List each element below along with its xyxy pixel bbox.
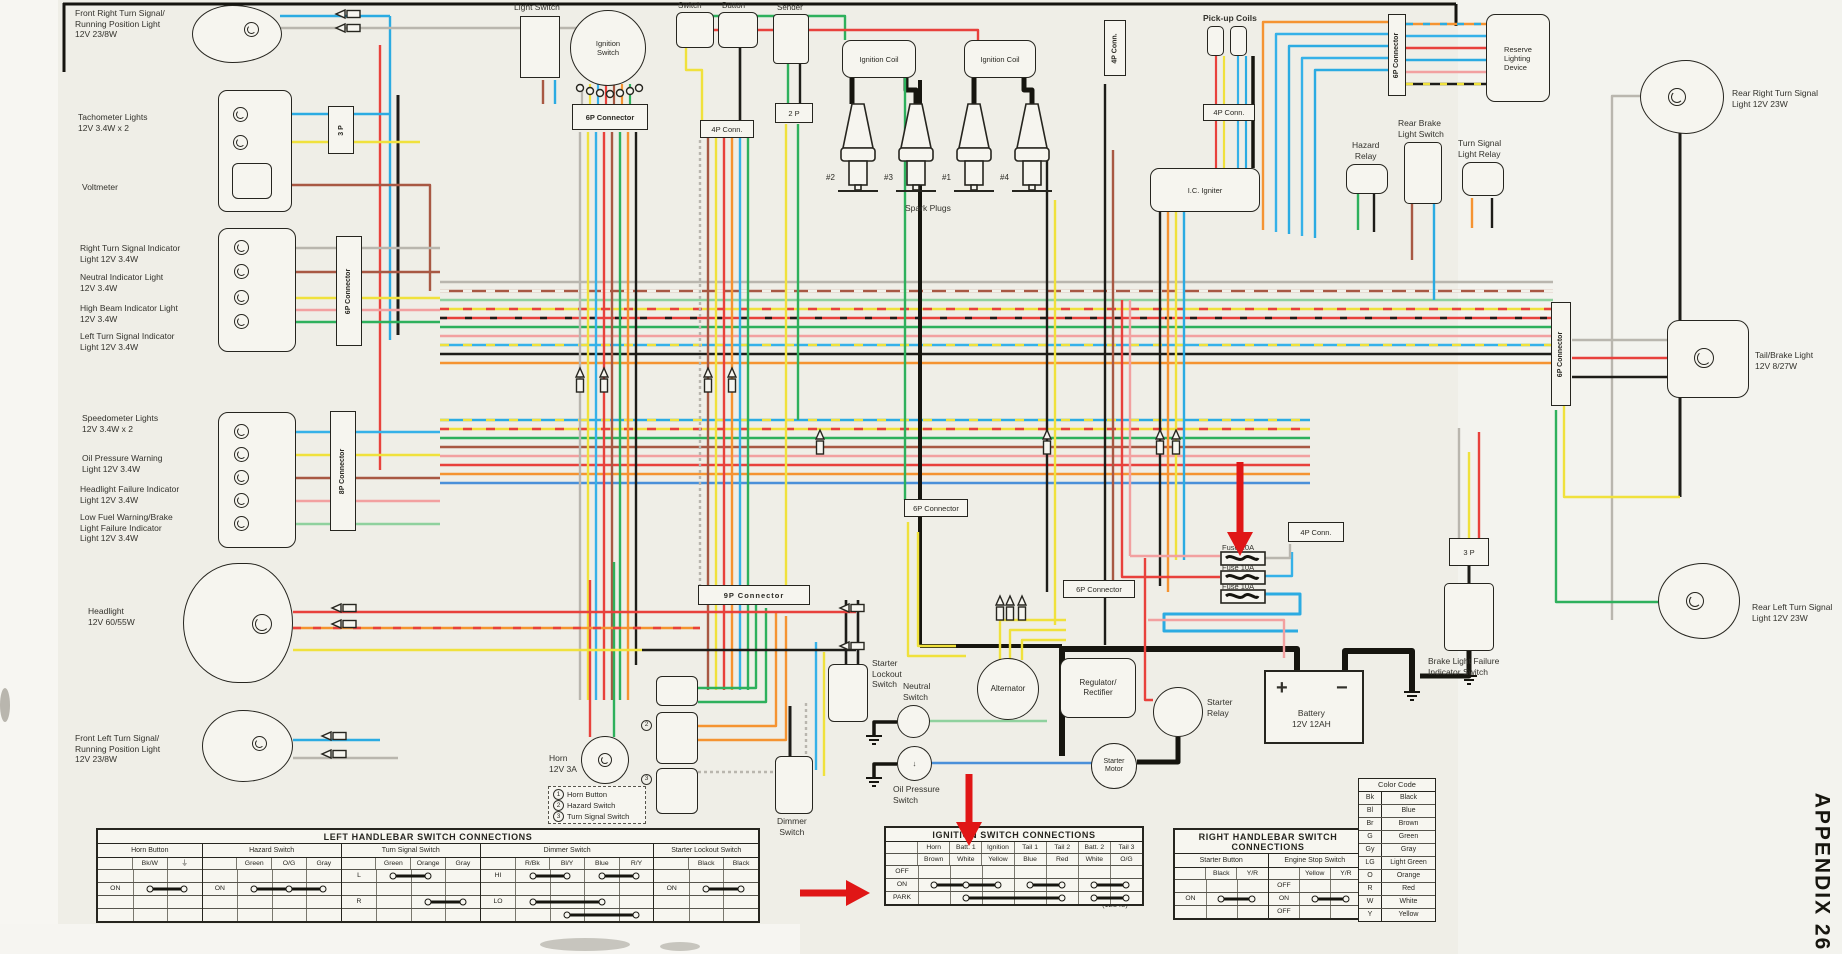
lamp-bulb bbox=[234, 516, 249, 531]
table-title: IGNITION SWITCH CONNECTIONS bbox=[886, 828, 1142, 842]
label-light-switch: Light Switch bbox=[514, 2, 560, 13]
ic-igniter-box: I.C. Igniter bbox=[1150, 168, 1260, 212]
table-title: LEFT HANDLEBAR SWITCH CONNECTIONS bbox=[98, 830, 758, 844]
label-top-switch: Switch bbox=[678, 1, 702, 11]
lamp-bulb bbox=[234, 470, 249, 485]
starter-motor-body: Starter Motor bbox=[1091, 743, 1137, 789]
color-code-row: GyGray bbox=[1359, 844, 1435, 857]
left-handlebar-connections-table: LEFT HANDLEBAR SWITCH CONNECTIONSHorn Bu… bbox=[96, 828, 760, 923]
label-sender: Sender bbox=[777, 3, 803, 13]
connector-6p-cluster1: 6P Connector bbox=[336, 236, 362, 346]
pickup-coil-1 bbox=[1207, 26, 1224, 56]
scan-stain bbox=[0, 688, 10, 722]
label-rear-right-signal: Rear Right Turn Signal Light 12V 23W bbox=[1732, 88, 1818, 109]
circled-3: 3 bbox=[641, 774, 652, 785]
pickup-coil-2 bbox=[1230, 26, 1247, 56]
regulator-rectifier-box: Regulator/ Rectifier bbox=[1060, 658, 1136, 718]
label-front-right-signal: Front Right Turn Signal/ Running Positio… bbox=[75, 8, 165, 40]
ignition-switch-terminals bbox=[577, 85, 643, 98]
label-fuse-10b: Fuse 10A bbox=[1222, 582, 1254, 591]
label-horn: Horn 12V 3A bbox=[549, 753, 577, 774]
color-code-row: BkBlack bbox=[1359, 792, 1435, 805]
plug-number: #1 bbox=[942, 173, 951, 182]
wiring-diagram-page: #2 #3 #1 #4 bbox=[0, 0, 1842, 954]
right-handlebar-connections-table: RIGHT HANDLEBAR SWITCH CONNECTIONSStarte… bbox=[1173, 828, 1363, 920]
connector-4p-top: 4P Conn. bbox=[700, 120, 754, 138]
ignition-switch-body: Ignition Switch bbox=[570, 10, 646, 86]
label-low-fuel: Low Fuel Warning/Brake Light Failure Ind… bbox=[80, 512, 173, 544]
scan-stain bbox=[540, 938, 630, 951]
neutral-switch-body bbox=[897, 705, 930, 738]
label-neutral-indicator: Neutral Indicator Light 12V 3.4W bbox=[80, 272, 163, 293]
label-battery: Battery 12V 12AH bbox=[1292, 708, 1331, 729]
lamp-bulb bbox=[233, 135, 248, 150]
connector-3p-right: 3 P bbox=[1449, 538, 1489, 566]
table-section: Starter Lockout SwitchBlackBlackON bbox=[653, 844, 758, 921]
label-fuse-20a: Fuse 20A bbox=[1222, 543, 1254, 552]
label-fuse-10a: Fuse 10A bbox=[1222, 563, 1254, 572]
connector-6p-ignition: 6P Connector bbox=[572, 104, 648, 130]
label-pickup-coils: Pick-up Coils bbox=[1203, 13, 1257, 24]
top-button-box bbox=[718, 12, 758, 48]
legend-notes-list: 1Horn Button2Hazard Switch3Turn Signal S… bbox=[553, 789, 641, 822]
label-oil-warning: Oil Pressure Warning Light 12V 3.4W bbox=[82, 453, 162, 474]
table-title: RIGHT HANDLEBAR SWITCH CONNECTIONS bbox=[1175, 830, 1361, 854]
lamp-bulb bbox=[234, 264, 249, 279]
label-neutral-switch: Neutral Switch bbox=[903, 681, 930, 702]
lamp-bulb bbox=[252, 614, 272, 634]
table-section: HornBatt. 1IgnitionTail 1Tail 2Batt. 2Ta… bbox=[886, 842, 1142, 904]
rear-brake-light-switch-box bbox=[1404, 142, 1442, 204]
label-oil-switch: Oil Pressure Switch bbox=[893, 784, 940, 805]
label-left-turn-indicator: Left Turn Signal Indicator Light 12V 3.4… bbox=[80, 331, 175, 352]
lamp-bulb bbox=[234, 240, 249, 255]
lamp-bulb bbox=[252, 736, 267, 751]
lamp-bulb bbox=[234, 290, 249, 305]
battery-plus-sign: + bbox=[1276, 676, 1288, 701]
table-section: Horn ButtonBk/W⏚ON bbox=[98, 844, 202, 921]
lamp-bulb bbox=[234, 424, 249, 439]
indicator-cluster-2 bbox=[218, 412, 296, 548]
lamp-bulb bbox=[234, 314, 249, 329]
color-code-table: Color CodeBkBlackBlBlueBrBrownGGreenGyGr… bbox=[1358, 778, 1436, 922]
label-dimmer-switch: Dimmer Switch bbox=[777, 816, 807, 837]
connector-2p: 2 P bbox=[775, 103, 813, 123]
label-speedometer: Speedometer Lights 12V 3.4W x 2 bbox=[82, 413, 158, 434]
label-brake-fail-switch: Brake Light Failure Indicator Switch bbox=[1428, 656, 1499, 677]
handlebar-switch-stack-3 bbox=[656, 768, 698, 814]
label-spark-plugs: Spark Plugs bbox=[905, 203, 951, 214]
fuses bbox=[1221, 552, 1265, 603]
connector-9p: 9P Connector bbox=[698, 585, 810, 605]
label-tail-brake: Tail/Brake Light 12V 8/27W bbox=[1755, 350, 1813, 371]
horn-center bbox=[598, 753, 612, 767]
ignition-coil-2: Ignition Coil bbox=[964, 40, 1036, 78]
spark-plugs: #2 #3 #1 #4 bbox=[826, 104, 1052, 191]
battery-minus-sign: − bbox=[1336, 676, 1348, 701]
connector-6p-right: 6P Connector bbox=[1551, 302, 1571, 406]
label-tachometer: Tachometer Lights 12V 3.4W x 2 bbox=[78, 112, 147, 133]
label-top-button: Button bbox=[722, 1, 745, 11]
lamp-bulb bbox=[1694, 348, 1714, 368]
alternator-body: Alternator bbox=[977, 658, 1039, 720]
appendix-title: APPENDIX 26 bbox=[1809, 793, 1833, 952]
light-switch-box bbox=[520, 16, 560, 78]
color-code-row: WWhite bbox=[1359, 896, 1435, 909]
handlebar-switch-stack-2 bbox=[656, 712, 698, 764]
connector-4p-vertical: 4P Conn. bbox=[1104, 20, 1126, 76]
color-code-row: LGLight Green bbox=[1359, 857, 1435, 870]
sender-box bbox=[773, 14, 809, 64]
color-code-row: OOrange bbox=[1359, 870, 1435, 883]
starter-lockout-switch-box bbox=[828, 664, 868, 722]
label-hazard-relay: Hazard Relay bbox=[1352, 140, 1379, 161]
connector-4p-pickup: 4P Conn. bbox=[1203, 104, 1255, 121]
connector-6p-topright: 6P Connector bbox=[1388, 14, 1406, 96]
ignition-switch-connections-table: IGNITION SWITCH CONNECTIONSHornBatt. 1Ig… bbox=[884, 826, 1144, 906]
color-code-row: RRed bbox=[1359, 883, 1435, 896]
brake-light-failure-switch-box bbox=[1444, 583, 1494, 651]
plug-number: #3 bbox=[884, 173, 893, 182]
table-section: Starter ButtonBlackY/RON bbox=[1175, 854, 1268, 918]
circled-2: 2 bbox=[641, 720, 652, 731]
voltmeter-gauge bbox=[232, 163, 272, 199]
table-section: Turn Signal SwitchGreenOrangeGrayLR bbox=[341, 844, 480, 921]
legend-notes-box: 1Horn Button2Hazard Switch3Turn Signal S… bbox=[548, 786, 646, 824]
stack-number-2: 2 bbox=[641, 718, 655, 731]
indicator-cluster-1 bbox=[218, 228, 296, 352]
ignition-coil-1: Ignition Coil bbox=[842, 40, 916, 78]
legend-note: 1Horn Button bbox=[553, 789, 641, 800]
label-high-beam-indicator: High Beam Indicator Light 12V 3.4W bbox=[80, 303, 178, 324]
lamp-bulb bbox=[1668, 88, 1686, 106]
connector-6p-regulator: 6P Connector bbox=[1063, 580, 1135, 598]
label-front-left-signal: Front Left Turn Signal/ Running Position… bbox=[75, 733, 160, 765]
label-rear-left-signal: Rear Left Turn Signal Light 12V 23W bbox=[1752, 602, 1832, 623]
lamp-bulb bbox=[234, 493, 249, 508]
reserve-lighting-device: Reserve Lighting Device bbox=[1486, 14, 1550, 102]
dimmer-switch-box bbox=[775, 756, 813, 814]
headlight-lamp bbox=[183, 563, 293, 683]
starter-relay-body bbox=[1153, 687, 1203, 737]
label-starter-relay: Starter Relay bbox=[1207, 697, 1233, 718]
stack-number-3: 3 bbox=[641, 772, 655, 785]
connector-4p-fuse: 4P Conn. bbox=[1288, 522, 1344, 542]
table-section: Dimmer SwitchR/BkBl/YBlueR/YHILO bbox=[480, 844, 654, 921]
lamp-bulb bbox=[1686, 592, 1704, 610]
label-headlight-failure: Headlight Failure Indicator Light 12V 3.… bbox=[80, 484, 179, 505]
legend-note: 3Turn Signal Switch bbox=[553, 811, 641, 822]
label-headlight: Headlight 12V 60/55W bbox=[88, 606, 135, 627]
connector-8p-cluster2: 8P Connector bbox=[330, 411, 356, 531]
color-code-row: BlBlue bbox=[1359, 805, 1435, 818]
legend-note: 2Hazard Switch bbox=[553, 800, 641, 811]
oil-pressure-switch-body: ↓ bbox=[897, 746, 932, 781]
label-right-turn-indicator: Right Turn Signal Indicator Light 12V 3.… bbox=[80, 243, 180, 264]
label-ts-relay: Turn Signal Light Relay bbox=[1458, 138, 1501, 159]
color-code-row: YYellow bbox=[1359, 909, 1435, 921]
connector-6p-center: 6P Connector bbox=[904, 499, 968, 517]
label-starter-lockout: Starter Lockout Switch bbox=[872, 658, 902, 690]
spark-plug bbox=[954, 104, 994, 191]
label-voltmeter: Voltmeter bbox=[82, 182, 118, 193]
plug-number: #4 bbox=[1000, 173, 1009, 182]
plug-number: #2 bbox=[826, 173, 835, 182]
lamp-bulb bbox=[233, 107, 248, 122]
spark-plug bbox=[838, 104, 878, 191]
spark-plug bbox=[896, 104, 936, 191]
color-code-row: BrBrown bbox=[1359, 818, 1435, 831]
table-section: Engine Stop SwitchYellowY/ROFFONOFF bbox=[1268, 854, 1362, 918]
scan-stain bbox=[660, 942, 700, 951]
lamp-bulb bbox=[234, 447, 249, 462]
connector-3p-left: 3 P bbox=[328, 106, 354, 154]
turn-signal-relay-box bbox=[1462, 162, 1504, 196]
handlebar-switch-stack-1 bbox=[656, 676, 698, 706]
label-rear-brake-switch: Rear Brake Light Switch bbox=[1398, 118, 1444, 139]
top-switch-box bbox=[676, 12, 714, 48]
color-code-row: GGreen bbox=[1359, 831, 1435, 844]
lamp-bulb bbox=[244, 22, 259, 37]
table-section: Hazard SwitchGreenO/GGrayON bbox=[202, 844, 341, 921]
hazard-relay-box bbox=[1346, 164, 1388, 194]
